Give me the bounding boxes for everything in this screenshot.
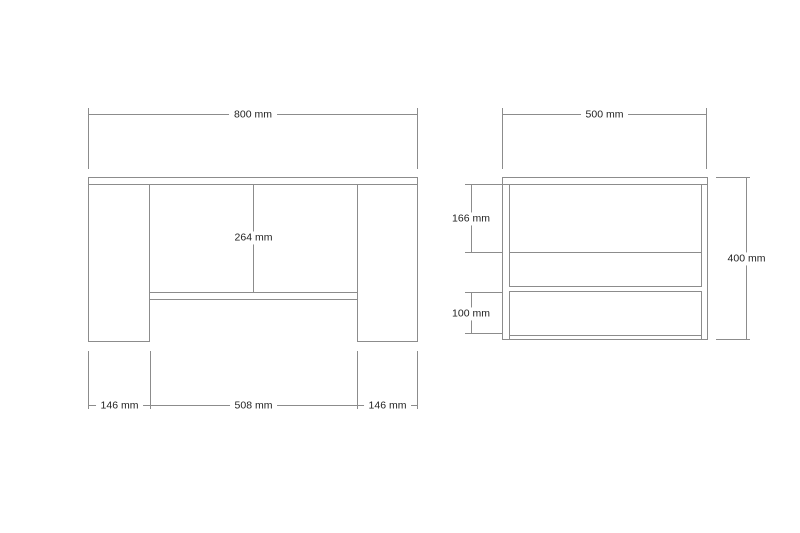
front-interior-width-label: 508 mm — [230, 399, 278, 412]
side-upper-shelf-line — [509, 252, 702, 253]
extension-line — [502, 108, 503, 169]
side-right-board-line — [701, 184, 702, 340]
front-right-panel-width-label: 146 mm — [364, 399, 412, 412]
front-left-leg — [88, 184, 150, 342]
extension-line — [88, 108, 89, 169]
front-overall-width-label: 800 mm — [229, 108, 277, 121]
extension-line — [417, 108, 418, 169]
dimension-tick — [716, 177, 750, 178]
side-left-board-line — [509, 184, 510, 340]
side-bottom-panel-line — [509, 335, 702, 336]
technical-drawing-canvas: 800 mm 264 mm 146 mm 508 mm 146 mm 500 m… — [0, 0, 800, 533]
side-overall-height-label: 400 mm — [723, 252, 771, 265]
front-right-leg — [357, 184, 418, 342]
side-upper-section-label: 166 mm — [447, 212, 495, 225]
front-shelf — [149, 292, 358, 300]
front-interior-height-label: 264 mm — [230, 231, 278, 244]
extension-line — [357, 351, 358, 409]
extension-line — [150, 351, 151, 409]
side-top-panel-line — [503, 184, 707, 185]
extension-line — [88, 351, 89, 409]
extension-line — [706, 108, 707, 169]
dimension-tick — [716, 339, 750, 340]
front-left-panel-width-label: 146 mm — [96, 399, 144, 412]
extension-line — [417, 351, 418, 409]
side-lower-section-label: 100 mm — [447, 307, 495, 320]
side-outer-frame — [502, 177, 708, 340]
side-overall-depth-label: 500 mm — [581, 108, 629, 121]
side-lower-shelf-board — [509, 286, 702, 292]
